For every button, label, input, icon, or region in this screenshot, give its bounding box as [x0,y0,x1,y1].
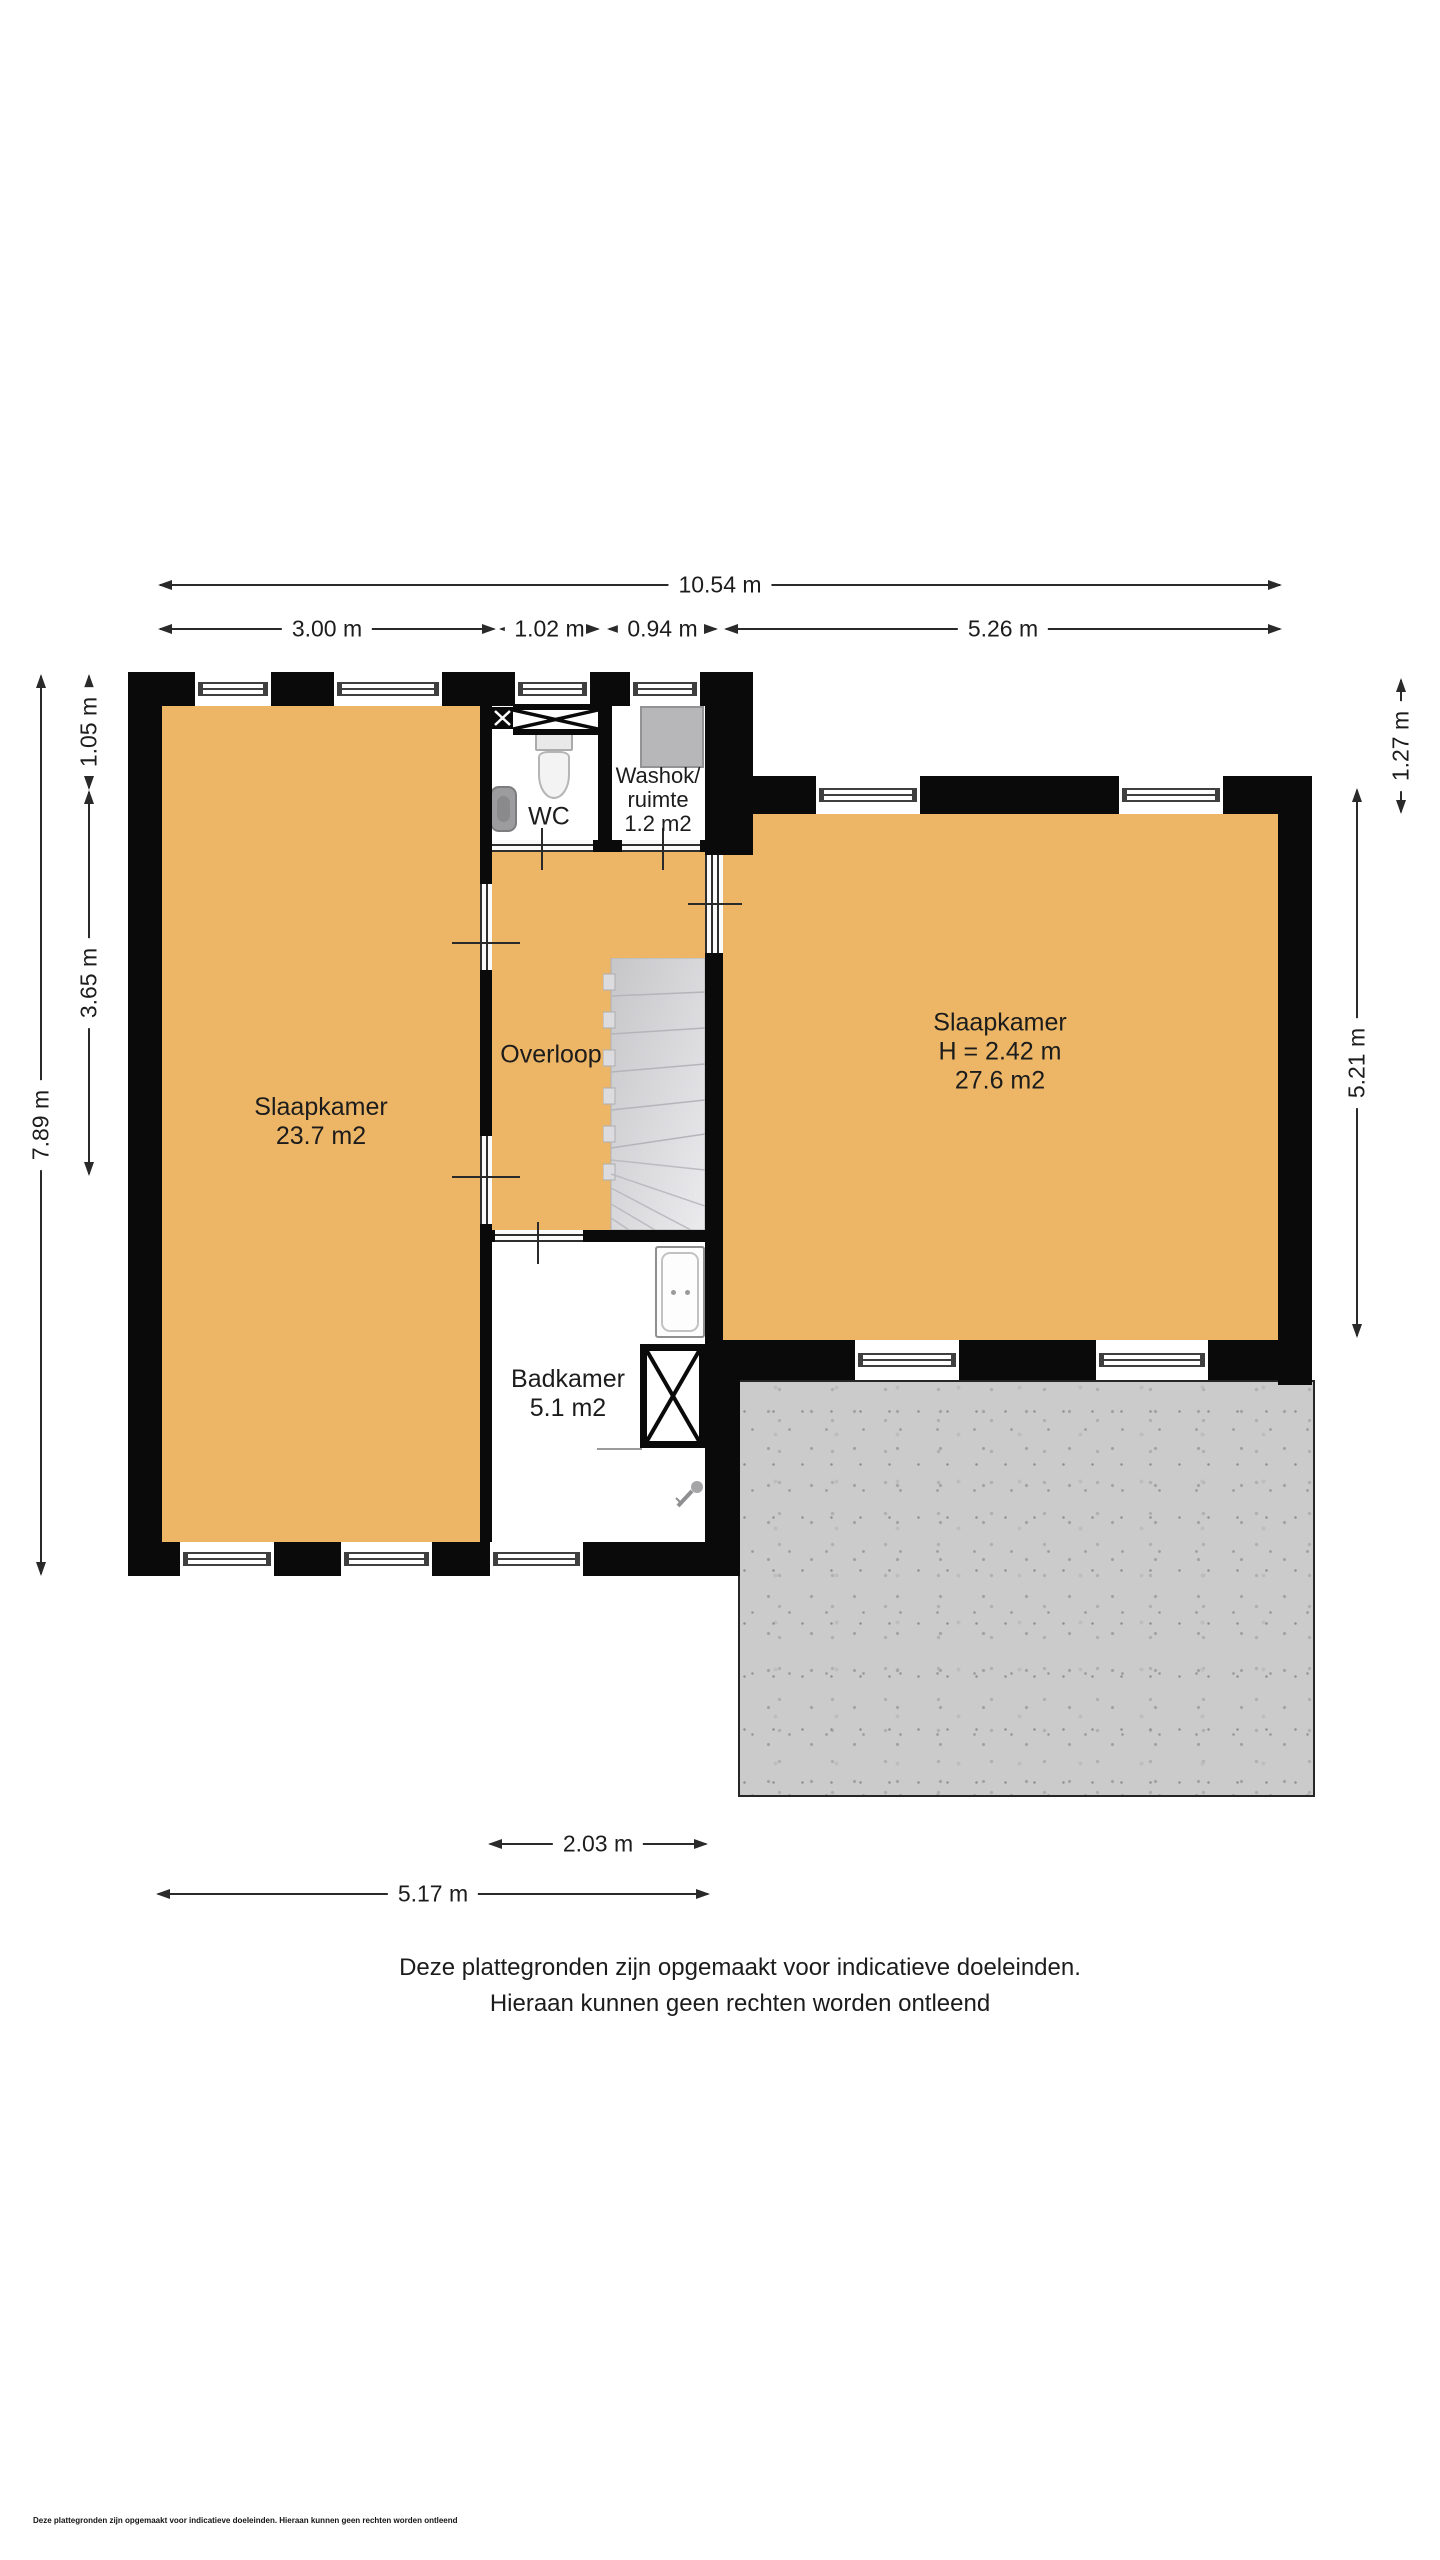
door-opening [480,1136,492,1224]
dimension-overloop-depth: 3.65 m [88,792,90,1174]
door-tick [688,903,742,905]
wall-badkamer-right-lower [705,1340,740,1576]
room-area: 5.1 m2 [511,1394,625,1423]
window [490,1542,583,1576]
disclaimer-text: Deze plattegronden zijn opgemaakt voor i… [340,1950,1140,2022]
dimension-label: 5.17 m [388,1880,478,1909]
disclaimer-line-2: Hieraan kunnen geen rechten worden ontle… [340,1986,1140,2022]
wall-room-divider [480,706,492,1542]
window [1096,1340,1208,1380]
dimension-label: 2.03 m [553,1830,643,1859]
door-tick [541,828,543,870]
dimension-washok-width: 0.94 m [609,628,716,630]
dimension-right-room-width: 5.26 m [726,628,1280,630]
window-glass-icon [518,682,587,696]
room-name: WC [528,803,570,832]
dimension-label: 3.00 m [282,615,372,644]
room-name: Slaapkamer [933,1009,1066,1038]
window [855,1340,959,1380]
window-glass-icon [1099,1353,1205,1367]
room-name: ruimte [616,788,701,812]
shaft-x-icon [640,1344,706,1448]
dimension-wc-width: 1.02 m [501,628,598,630]
shower-head-icon [672,1478,708,1514]
label-washok: Washok/ ruimte 1.2 m2 [616,764,701,836]
door-opening [480,884,492,970]
room-area: 27.6 m2 [933,1067,1066,1096]
room-area: 23.7 m2 [254,1122,387,1151]
window-glass-icon [344,1552,429,1566]
disclaimer-line-1: Deze plattegronden zijn opgemaakt voor i… [340,1950,1140,1986]
dimension-label: 1.02 m [504,615,594,644]
dimension-wc-depth: 1.05 m [88,676,90,788]
wall-right [1278,776,1312,1385]
window-glass-icon [493,1552,580,1566]
window [630,672,700,706]
wall-badkamer-right-upper [705,1242,723,1340]
label-slaapkamer-right: Slaapkamer H = 2.42 m 27.6 m2 [933,1009,1066,1096]
wall-overloop-right [705,953,723,1242]
dimension-label: 0.94 m [617,615,707,644]
floor-plan-canvas: Slaapkamer 23.7 m2 WC Washok/ ruimte 1.2… [0,0,1440,2560]
window-glass-icon [633,682,697,696]
stairs-icon [603,958,705,1230]
room-ceiling-height: H = 2.42 m [933,1038,1066,1067]
window [515,672,590,706]
window-glass-icon [819,788,917,802]
window [195,672,271,706]
washing-machine-icon [640,706,704,768]
sink-icon [490,786,517,832]
window-glass-icon [1122,788,1220,802]
label-slaapkamer-left: Slaapkamer 23.7 m2 [254,1093,387,1151]
label-badkamer: Badkamer 5.1 m2 [511,1365,625,1423]
wall-washok-right [705,672,753,855]
window-glass-icon [337,682,439,696]
dimension-right-offset-height: 1.27 m [1400,680,1402,812]
door-tick [452,942,520,944]
dimension-label: 3.65 m [75,938,104,1028]
label-overloop: Overloop [500,1041,601,1070]
dimension-right-room-height: 5.21 m [1356,790,1358,1336]
window [341,1542,432,1576]
room-name: Slaapkamer [254,1093,387,1122]
window [180,1542,274,1576]
roof-terrace [738,1380,1315,1797]
dimension-label: 1.27 m [1387,701,1416,791]
label-wc: WC [528,803,570,832]
wall-left [128,672,162,1576]
window [334,672,442,706]
wall-wc-washok [598,706,612,840]
footnote-text: Deze plattegronden zijn opgemaakt voor i… [33,2516,458,2525]
dimension-badkamer-width: 2.03 m [490,1843,706,1845]
room-name: Badkamer [511,1365,625,1394]
dimension-total-height: 7.89 m [40,676,42,1574]
vent-box-icon [492,707,513,729]
dimension-bottom-width: 5.17 m [158,1893,708,1895]
window [1119,776,1223,814]
door-tick [452,1176,520,1178]
toilet-bowl-icon [538,751,570,799]
window-glass-icon [858,1353,956,1367]
door-opening [622,840,700,852]
dimension-label: 5.26 m [958,615,1048,644]
window-glass-icon [198,682,268,696]
wall-bottom-right-section [740,1340,1312,1380]
window [816,776,920,814]
room-name: Overloop [500,1041,601,1070]
door-opening [495,1230,583,1242]
shower-partition [597,1448,642,1450]
dimension-label: 1.05 m [75,687,104,777]
door-tick [537,1222,539,1264]
room-area: 1.2 m2 [616,812,701,836]
bathtub-icon [655,1246,705,1338]
dimension-left-room-width: 3.00 m [160,628,494,630]
duct-shaft-icon [513,704,598,735]
dimension-label: 5.21 m [1343,1018,1372,1108]
window-glass-icon [183,1552,271,1566]
room-name: Washok/ [616,764,701,788]
dimension-total-width: 10.54 m [160,584,1280,586]
dimension-label: 7.89 m [27,1080,56,1170]
dimension-label: 10.54 m [668,571,771,600]
